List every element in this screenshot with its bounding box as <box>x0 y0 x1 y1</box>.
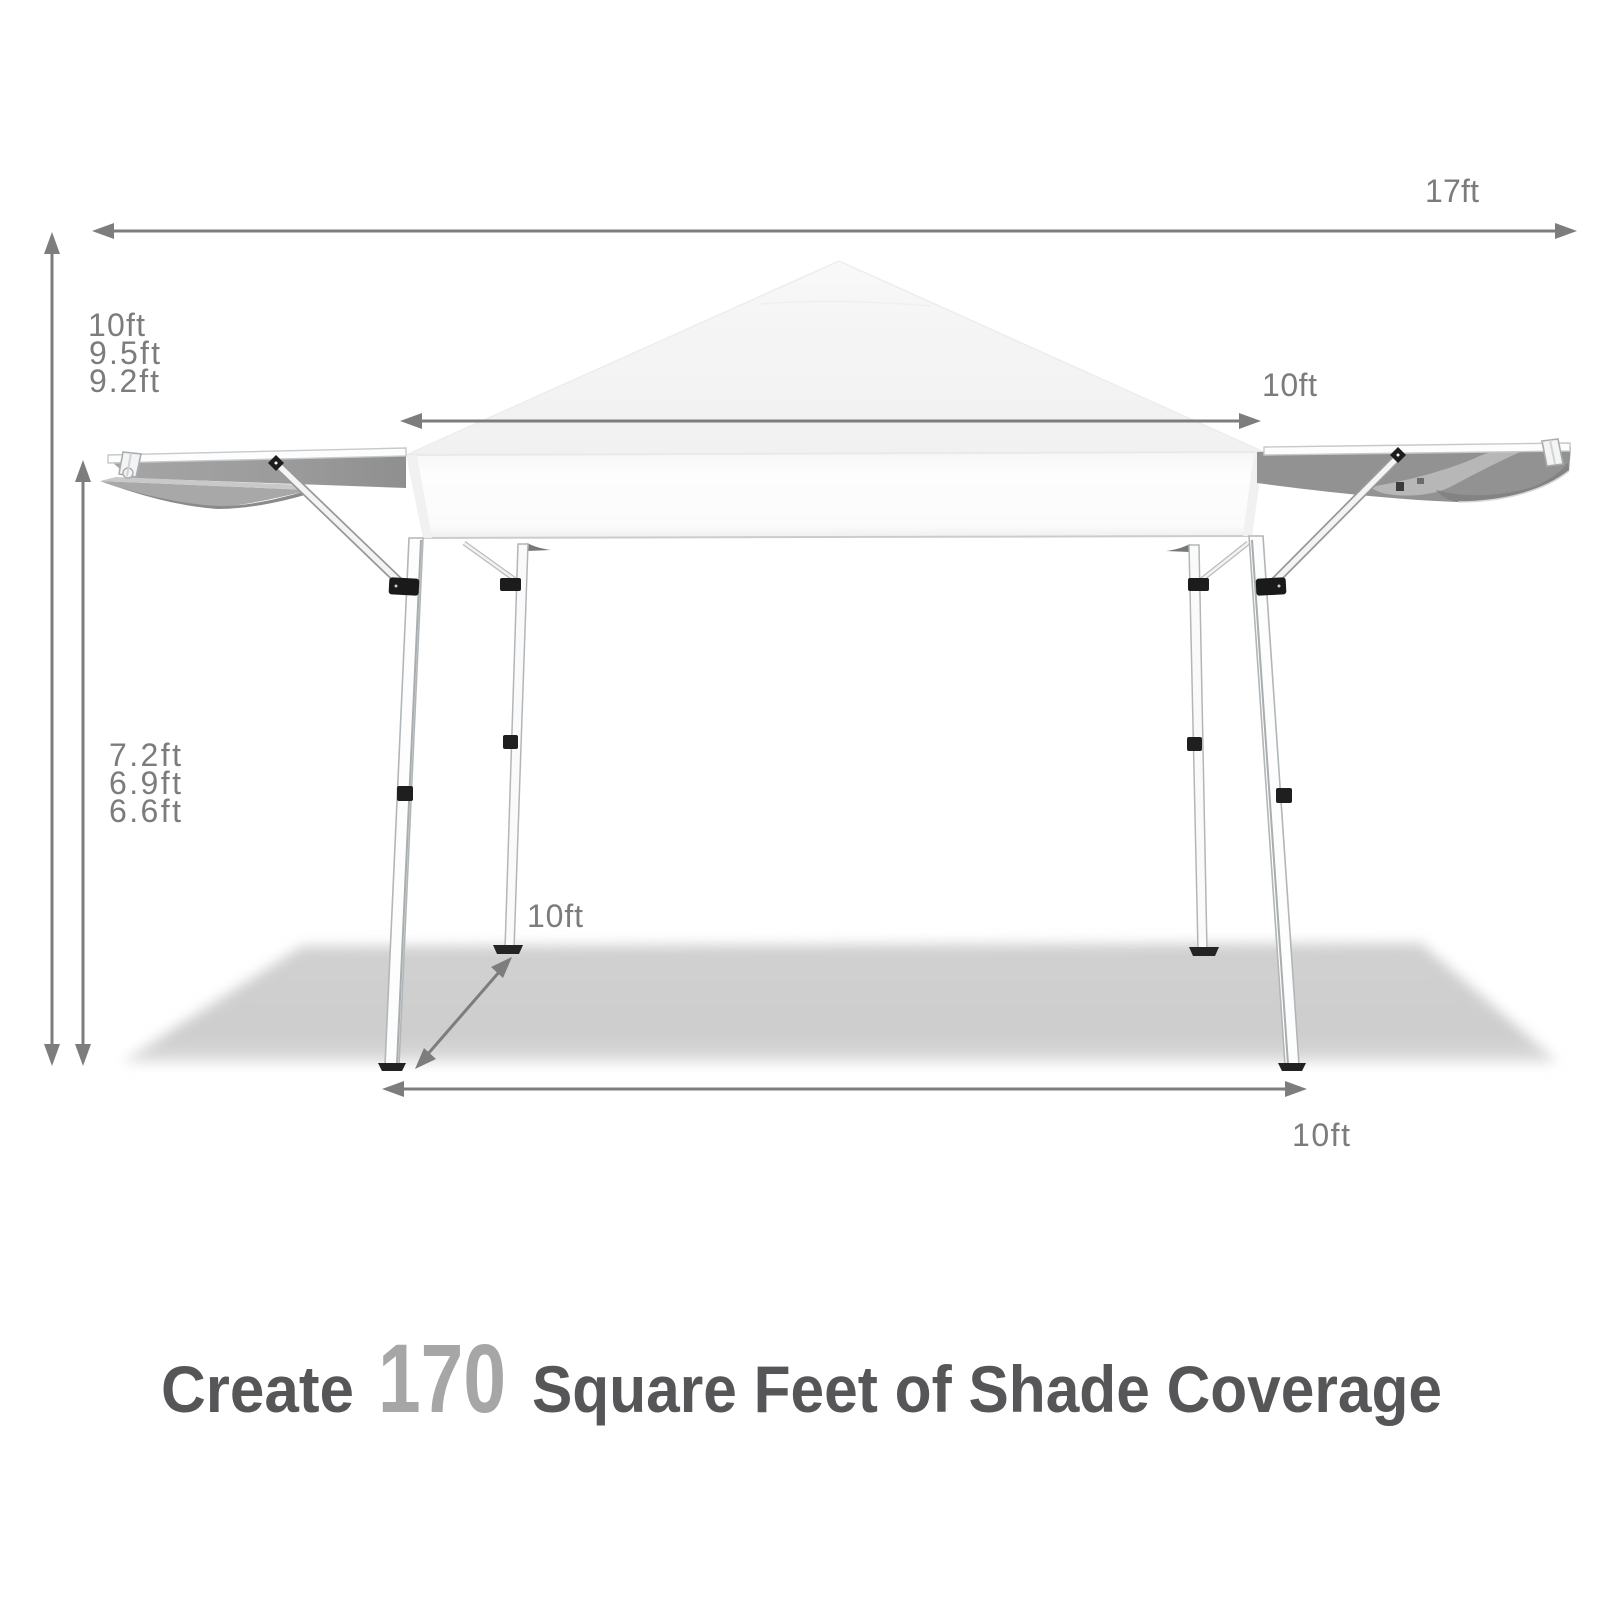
svg-text:10ft: 10ft <box>1262 367 1317 403</box>
svg-text:10ft: 10ft <box>1292 1117 1350 1153</box>
svg-text:Square Feet of Shade Coverage: Square Feet of Shade Coverage <box>532 1352 1442 1426</box>
svg-text:10ft: 10ft <box>527 898 583 934</box>
svg-text:6.6ft: 6.6ft <box>109 793 181 829</box>
svg-text:170: 170 <box>378 1324 506 1433</box>
svg-text:Create: Create <box>161 1352 354 1426</box>
svg-text:17ft: 17ft <box>1425 173 1479 209</box>
